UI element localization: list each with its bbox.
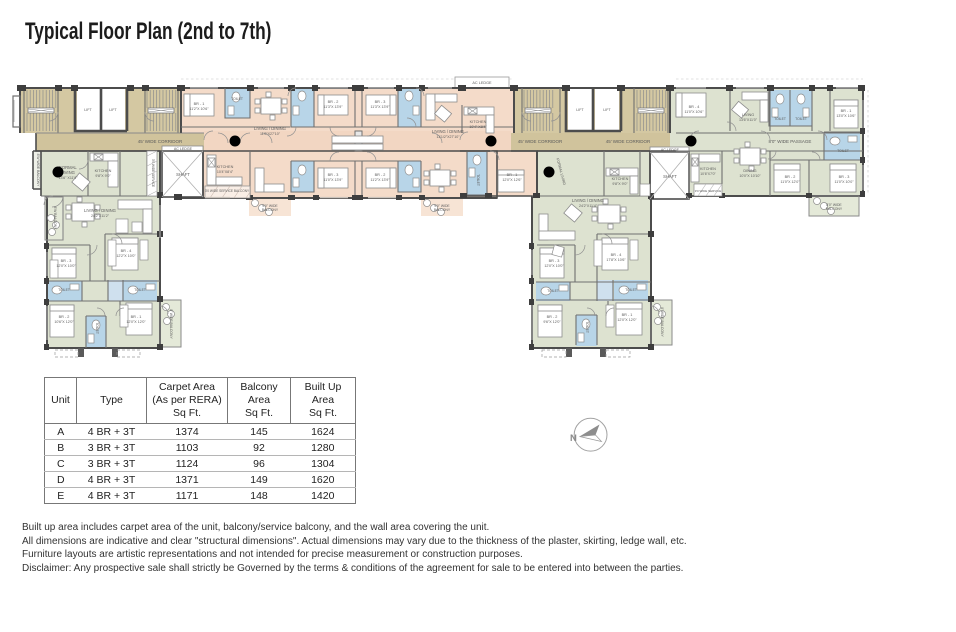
- svg-text:9'8"X 9'0": 9'8"X 9'0": [612, 182, 628, 186]
- svg-text:LIVING / DINING: LIVING / DINING: [84, 208, 116, 213]
- svg-text:BR - 3: BR - 3: [328, 173, 339, 177]
- svg-text:8'0" WIDE PASSAGE: 8'0" WIDE PASSAGE: [769, 139, 812, 144]
- svg-text:BR - 2: BR - 2: [59, 315, 70, 319]
- svg-text:13'0"X 10'6": 13'0"X 10'6": [836, 114, 856, 118]
- svg-text:11'0"X 10'6": 11'0"X 10'6": [684, 110, 704, 114]
- svg-text:12'0"X 12'6": 12'0"X 12'6": [502, 178, 522, 182]
- svg-text:8' WIDE BALCONY: 8' WIDE BALCONY: [169, 309, 173, 339]
- svg-text:11'3"X 13'9": 11'3"X 13'9": [370, 105, 390, 109]
- svg-text:BR - 1: BR - 1: [194, 102, 205, 106]
- svg-text:LIFT: LIFT: [603, 108, 611, 112]
- svg-text:11'1/2"X27'10": 11'1/2"X27'10": [436, 135, 460, 139]
- svg-text:LIFT: LIFT: [109, 108, 117, 112]
- svg-text:TOILET: TOILET: [547, 289, 559, 293]
- svg-text:BALCONY: BALCONY: [262, 208, 279, 212]
- svg-text:SHAFT: SHAFT: [176, 172, 190, 177]
- svg-text:BR - 1: BR - 1: [622, 313, 633, 317]
- svg-text:KITCHEN: KITCHEN: [217, 165, 234, 169]
- svg-text:45' WIDE CORRIDOR: 45' WIDE CORRIDOR: [606, 139, 651, 144]
- svg-text:KITCHEN: KITCHEN: [612, 177, 629, 181]
- svg-text:KITCHEN: KITCHEN: [700, 167, 716, 171]
- svg-text:KITCHEN: KITCHEN: [95, 169, 112, 173]
- svg-text:LIVING / DINING: LIVING / DINING: [254, 126, 286, 131]
- svg-text:LIFT: LIFT: [84, 108, 92, 112]
- svg-text:BR - 3: BR - 3: [375, 100, 386, 104]
- svg-text:11'0"X 12'0": 11'0"X 12'0": [780, 180, 800, 184]
- svg-text:LIVING / DINING: LIVING / DINING: [432, 129, 464, 134]
- svg-text:BR - 3: BR - 3: [839, 175, 850, 179]
- svg-text:BR - 1: BR - 1: [841, 109, 852, 113]
- svg-text:10'0"X 10'10": 10'0"X 10'10": [739, 174, 761, 178]
- svg-text:BR - 2: BR - 2: [547, 315, 558, 319]
- svg-text:AC LEDGE: AC LEDGE: [661, 148, 680, 152]
- svg-text:AC LEDGE: AC LEDGE: [174, 147, 193, 151]
- svg-text:KITCHEN: KITCHEN: [470, 120, 487, 124]
- svg-text:12'0"X 12'0": 12'0"X 12'0": [126, 320, 146, 324]
- svg-text:11'3"X 13'9": 11'3"X 13'9": [323, 105, 343, 109]
- svg-text:10'6"X 12'0": 10'6"X 12'0": [54, 320, 74, 324]
- svg-text:24'2"X11'2": 24'2"X11'2": [91, 214, 110, 218]
- svg-text:TOILET: TOILET: [585, 321, 589, 333]
- svg-text:8' WIDE BALCONY: 8' WIDE BALCONY: [660, 307, 664, 337]
- svg-text:11'0"X 10'0": 11'0"X 10'0": [834, 180, 854, 184]
- svg-text:LIVING / DINING: LIVING / DINING: [572, 198, 604, 203]
- svg-text:24'2"X11'4": 24'2"X11'4": [579, 204, 598, 208]
- svg-text:BR - 1: BR - 1: [507, 173, 518, 177]
- svg-text:TOILET: TOILET: [58, 288, 70, 292]
- svg-text:3'0 WIDE SERVICE: 3'0 WIDE SERVICE: [151, 159, 155, 187]
- svg-text:TOILET: TOILET: [795, 117, 807, 121]
- svg-text:SHAFT: SHAFT: [663, 174, 677, 179]
- svg-text:LIVING: LIVING: [742, 113, 754, 117]
- svg-text:BR - 1: BR - 1: [131, 315, 142, 319]
- svg-text:8'W WIDE BALCONY: 8'W WIDE BALCONY: [36, 154, 40, 187]
- svg-text:DINING: DINING: [743, 169, 756, 173]
- svg-text:BR - 2: BR - 2: [328, 100, 339, 104]
- svg-text:BR - 3: BR - 3: [61, 259, 72, 263]
- svg-text:3'0 WIDE SERVICE BALCONY: 3'0 WIDE SERVICE BALCONY: [205, 189, 250, 193]
- svg-text:BR - 2: BR - 2: [375, 173, 386, 177]
- svg-text:BR - 4: BR - 4: [611, 253, 622, 257]
- svg-text:TOILET: TOILET: [476, 174, 480, 186]
- svg-text:45' WIDE CORRIDOR: 45' WIDE CORRIDOR: [518, 139, 563, 144]
- svg-text:12'0"X 10'0": 12'0"X 10'0": [544, 264, 564, 268]
- svg-text:N: N: [570, 433, 577, 444]
- svg-text:TOILET: TOILET: [774, 117, 786, 121]
- svg-text:45' WIDE CORRIDOR: 45' WIDE CORRIDOR: [138, 139, 183, 144]
- svg-text:12'0"X 10'0": 12'0"X 10'0": [56, 264, 76, 268]
- svg-text:13'6"X11'0": 13'6"X11'0": [739, 118, 758, 122]
- svg-text:8'W BALCONY: 8'W BALCONY: [53, 207, 57, 231]
- svg-text:12'2"X 10'0": 12'2"X 10'0": [116, 254, 136, 258]
- svg-text:BR - 3: BR - 3: [549, 259, 560, 263]
- svg-text:11'0"X 13'9": 11'0"X 13'9": [323, 178, 343, 182]
- svg-text:9'0 WIDE SERVICE: 9'0 WIDE SERVICE: [695, 189, 722, 193]
- svg-text:10'4" X8'4": 10'4" X8'4": [469, 125, 487, 129]
- svg-text:9'6"X 12'0": 9'6"X 12'0": [543, 320, 561, 324]
- svg-text:BALCONY: BALCONY: [434, 208, 451, 212]
- svg-text:10'4"X8'4": 10'4"X8'4": [217, 170, 234, 174]
- svg-text:12'0"X 12'0": 12'0"X 12'0": [617, 318, 637, 322]
- svg-text:9'8"X 9'0": 9'8"X 9'0": [95, 174, 111, 178]
- svg-text:10'6"X7'0": 10'6"X7'0": [700, 172, 716, 176]
- svg-text:11'0"X27'10": 11'0"X27'10": [260, 132, 281, 136]
- svg-text:BR - 4: BR - 4: [121, 249, 132, 253]
- svg-text:AC LEDGE: AC LEDGE: [472, 81, 492, 85]
- svg-text:TOILET: TOILET: [231, 97, 243, 101]
- svg-text:TOILET: TOILET: [837, 149, 849, 153]
- svg-text:TOILET: TOILET: [134, 288, 146, 292]
- svg-text:11'2"X 10'6": 11'2"X 10'6": [189, 107, 209, 111]
- svg-text:BR - 4: BR - 4: [689, 105, 700, 109]
- svg-text:BALCONY: BALCONY: [826, 207, 843, 211]
- svg-text:BR - 2: BR - 2: [785, 175, 796, 179]
- svg-text:TOILET: TOILET: [625, 288, 637, 292]
- svg-text:13'6" X11'9": 13'6" X11'9": [58, 176, 78, 180]
- svg-text:17'8"X 10'6": 17'8"X 10'6": [606, 258, 626, 262]
- svg-text:TOILET: TOILET: [95, 322, 99, 334]
- svg-text:LIFT: LIFT: [576, 108, 584, 112]
- svg-text:11'2"X 13'9": 11'2"X 13'9": [370, 178, 390, 182]
